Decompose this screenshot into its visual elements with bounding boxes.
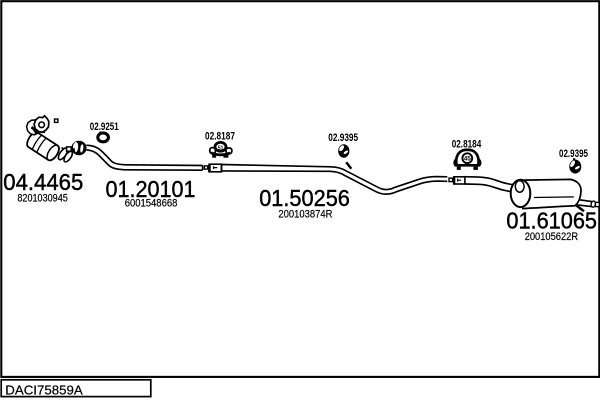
svg-text:02.9395: 02.9395 xyxy=(559,148,588,160)
svg-text:01.61065: 01.61065 xyxy=(506,207,597,233)
svg-text:02.8187: 02.8187 xyxy=(205,131,235,143)
svg-text:02.9251: 02.9251 xyxy=(90,121,119,133)
svg-text:51: 51 xyxy=(218,145,224,152)
svg-text:04.4465: 04.4465 xyxy=(3,169,83,195)
svg-text:45: 45 xyxy=(464,156,471,163)
svg-text:DACI75859A: DACI75859A xyxy=(5,384,83,398)
svg-text:200103874R: 200103874R xyxy=(278,209,332,221)
svg-text:6001548668: 6001548668 xyxy=(125,197,178,209)
svg-text:200105622R: 200105622R xyxy=(525,231,578,243)
svg-text:02.9395: 02.9395 xyxy=(328,132,358,144)
svg-text:8201030945: 8201030945 xyxy=(17,192,67,204)
svg-text:01.50256: 01.50256 xyxy=(259,185,350,211)
